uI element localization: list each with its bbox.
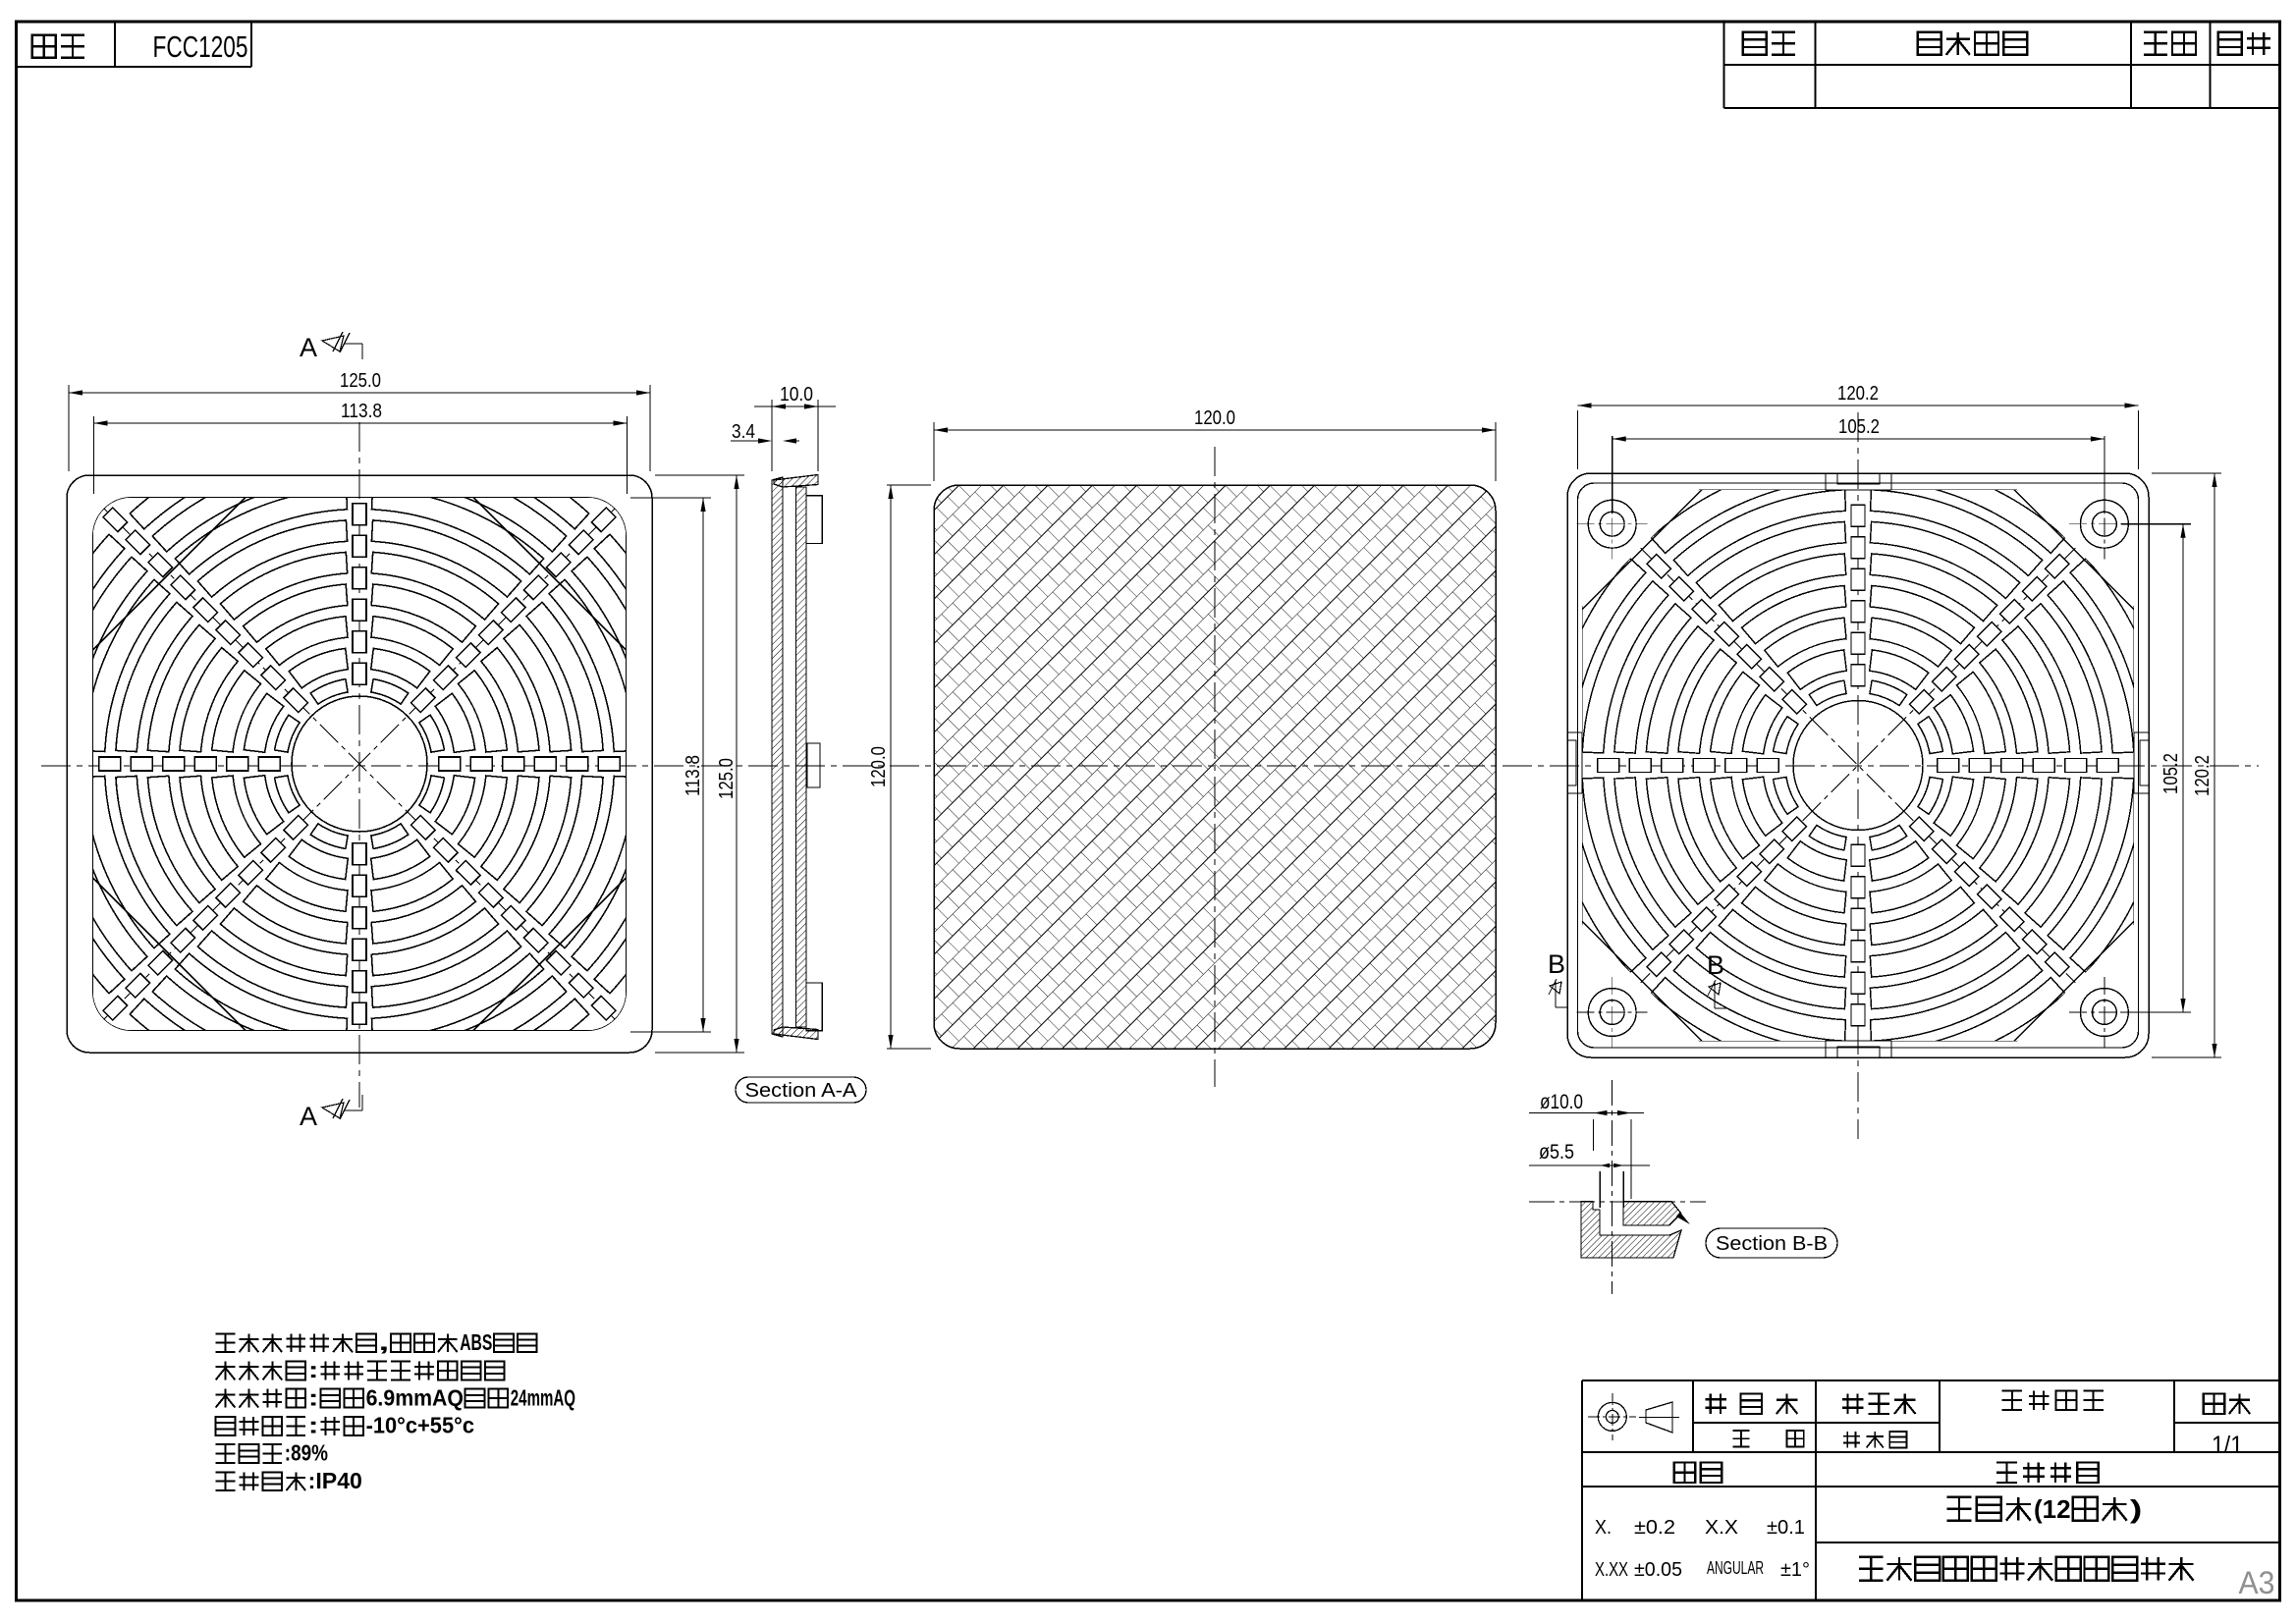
svg-text:120.0: 120.0 bbox=[868, 746, 890, 787]
svg-text:ø5.5: ø5.5 bbox=[1539, 1141, 1574, 1163]
svg-text:A: A bbox=[300, 1102, 317, 1131]
svg-text:X.X: X.X bbox=[1705, 1517, 1738, 1539]
svg-text:120.2: 120.2 bbox=[1837, 383, 1879, 405]
svg-text:X.: X. bbox=[1595, 1517, 1612, 1539]
svg-text:A: A bbox=[300, 333, 317, 362]
svg-text:125.0: 125.0 bbox=[716, 758, 738, 799]
svg-text:1/1: 1/1 bbox=[2212, 1432, 2243, 1459]
svg-text:±0.2: ±0.2 bbox=[1634, 1517, 1675, 1539]
svg-text:3.4: 3.4 bbox=[732, 421, 755, 443]
svg-text::: : bbox=[308, 1357, 319, 1382]
svg-text:(12: (12 bbox=[2034, 1494, 2071, 1524]
svg-text:B: B bbox=[1707, 950, 1724, 980]
svg-text:Section A-A: Section A-A bbox=[745, 1080, 858, 1102]
svg-text:X.XX: X.XX bbox=[1595, 1559, 1628, 1581]
svg-text:120.2: 120.2 bbox=[2192, 755, 2214, 796]
svg-text:ANGULAR: ANGULAR bbox=[1707, 1558, 1764, 1578]
svg-text::: : bbox=[308, 1413, 319, 1438]
svg-text:6.9mmAQ: 6.9mmAQ bbox=[366, 1384, 464, 1410]
svg-text:-10°c+55°c: -10°c+55°c bbox=[366, 1413, 475, 1438]
svg-text:ABS: ABS bbox=[460, 1329, 492, 1355]
svg-text:113.8: 113.8 bbox=[683, 755, 704, 796]
svg-text::89%: :89% bbox=[285, 1440, 328, 1466]
svg-text:ø10.0: ø10.0 bbox=[1540, 1091, 1583, 1113]
svg-text:,: , bbox=[378, 1329, 389, 1355]
svg-text:): ) bbox=[2130, 1494, 2143, 1524]
svg-text:10.0: 10.0 bbox=[780, 384, 813, 406]
svg-text:113.8: 113.8 bbox=[341, 401, 382, 422]
svg-text:FCC1205: FCC1205 bbox=[153, 29, 248, 64]
svg-text:125.0: 125.0 bbox=[340, 370, 381, 392]
svg-text:105.2: 105.2 bbox=[1838, 416, 1880, 438]
svg-text:±0.05: ±0.05 bbox=[1634, 1559, 1682, 1581]
svg-text:±1°: ±1° bbox=[1780, 1559, 1810, 1581]
svg-text:±0.1: ±0.1 bbox=[1767, 1517, 1805, 1539]
svg-text:A3: A3 bbox=[2239, 1565, 2275, 1600]
svg-text:B: B bbox=[1548, 949, 1565, 979]
svg-text:24mmAQ: 24mmAQ bbox=[511, 1384, 575, 1410]
svg-text:120.0: 120.0 bbox=[1194, 407, 1235, 429]
svg-text:105.2: 105.2 bbox=[2160, 753, 2182, 794]
svg-text::IP40: :IP40 bbox=[308, 1468, 362, 1493]
svg-text::: : bbox=[308, 1384, 319, 1410]
svg-text:Section B-B: Section B-B bbox=[1716, 1233, 1828, 1255]
